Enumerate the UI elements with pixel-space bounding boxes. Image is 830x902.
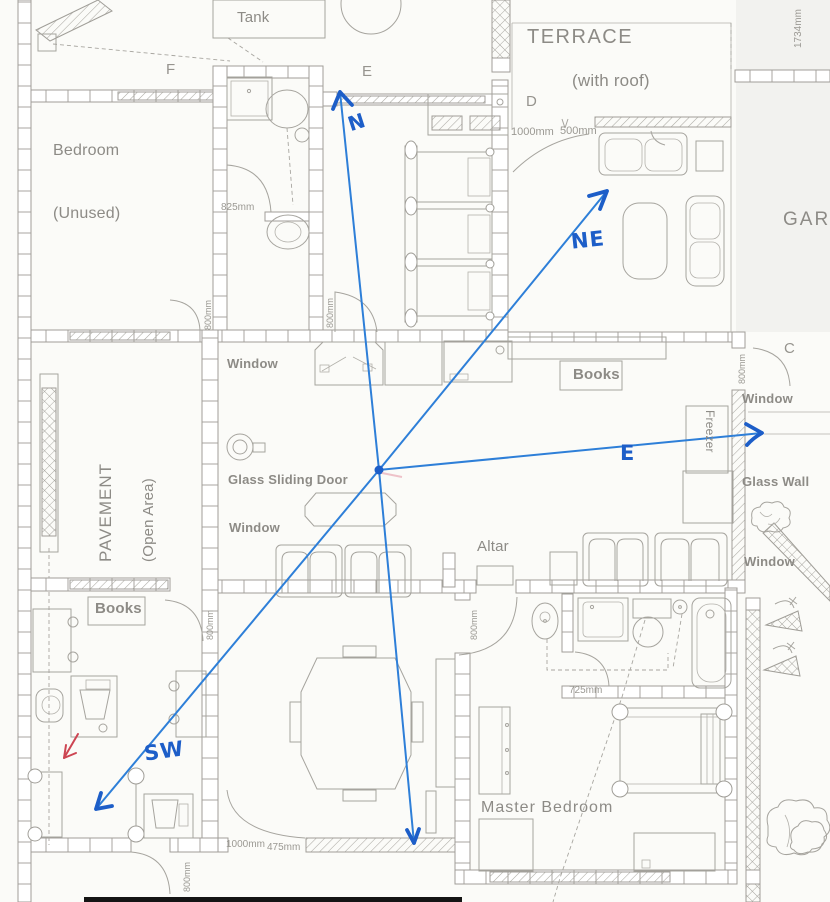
pavement-label: PAVEMENT — [97, 463, 114, 562]
books-label: Books — [95, 601, 142, 616]
dresser — [634, 833, 715, 871]
altar-table — [477, 566, 513, 585]
master-bedroom-label: Master Bedroom — [481, 800, 613, 816]
stairs-ramp — [36, 0, 112, 41]
dim-800mm: 800mm — [470, 610, 479, 640]
window-label: Window — [744, 555, 795, 568]
compass-label-northeast: NE — [570, 228, 606, 252]
bed — [417, 152, 492, 202]
wall-marker-e: E — [362, 64, 372, 79]
chair — [36, 689, 63, 722]
window-label: Window — [742, 392, 793, 405]
garden-tap — [764, 656, 800, 676]
cabinet — [436, 659, 455, 787]
wall-marker-c: C — [784, 341, 795, 356]
dim-1000mm: 1000mm — [511, 127, 554, 138]
dining-table — [301, 658, 411, 789]
dim-800mm: 800mm — [326, 298, 335, 328]
freezer-label: Freezer — [704, 410, 716, 453]
dim-800mm: 800mm — [204, 300, 213, 330]
toilet — [633, 617, 663, 647]
glass-sliding-door-label: Glass Sliding Door — [228, 473, 348, 486]
dim-1000mm: 1000mm — [226, 840, 265, 850]
dim-800mm: 800mm — [738, 354, 747, 384]
bed — [417, 266, 492, 316]
terrace-label: TERRACE — [527, 27, 633, 47]
compass-label-east: E — [620, 443, 635, 464]
tank-label: Tank — [237, 10, 270, 25]
scan-tint — [736, 0, 830, 332]
table — [144, 794, 193, 838]
bed — [620, 708, 725, 793]
basin — [532, 603, 558, 639]
bed — [417, 209, 492, 259]
floor-plan-scan: Tank F E D C TERRACE (with roof) GAR Bed… — [0, 0, 830, 902]
garden-tap — [766, 611, 802, 631]
pavement-qualifier: (Open Area) — [141, 478, 156, 562]
arrow-south — [379, 470, 414, 843]
compass-label-southwest: SW — [143, 738, 186, 764]
wall-marker-f: F — [166, 62, 175, 77]
dim-800mm: 800mm — [183, 862, 192, 892]
bedroom-qualifier: (Unused) — [53, 206, 120, 222]
books-label: Books — [573, 367, 620, 382]
desk — [444, 341, 512, 382]
shower-tray — [227, 77, 272, 120]
desk — [33, 609, 71, 672]
altar-label: Altar — [477, 539, 509, 554]
side-table — [696, 141, 723, 171]
window-label: Window — [229, 521, 280, 534]
bush — [767, 800, 830, 855]
arrow-north — [340, 92, 379, 470]
shower-tray — [578, 598, 628, 641]
dim-500mm: 500mm — [560, 126, 597, 137]
dim-1734mm: 1734mm — [794, 9, 804, 48]
bush — [790, 821, 826, 854]
dim-800mm: 800mm — [206, 610, 215, 640]
dim-725mm: 725mm — [569, 686, 602, 696]
scan-edge-artifact — [84, 897, 462, 902]
armchair — [686, 196, 724, 286]
dim-825mm: 825mm — [221, 203, 254, 213]
wall-marker-d: D — [526, 94, 537, 109]
garage-label: GAR — [783, 210, 830, 229]
kitchen-fixture — [227, 434, 253, 460]
window-label: Window — [227, 357, 278, 370]
bedroom-label: Bedroom — [53, 143, 119, 159]
tv-unit — [315, 342, 383, 385]
dim-475mm: 475mm — [267, 843, 300, 853]
terrace-qualifier: (with roof) — [572, 72, 650, 89]
glass-wall-label: Glass Wall — [742, 475, 809, 488]
coffee-table — [623, 203, 667, 279]
